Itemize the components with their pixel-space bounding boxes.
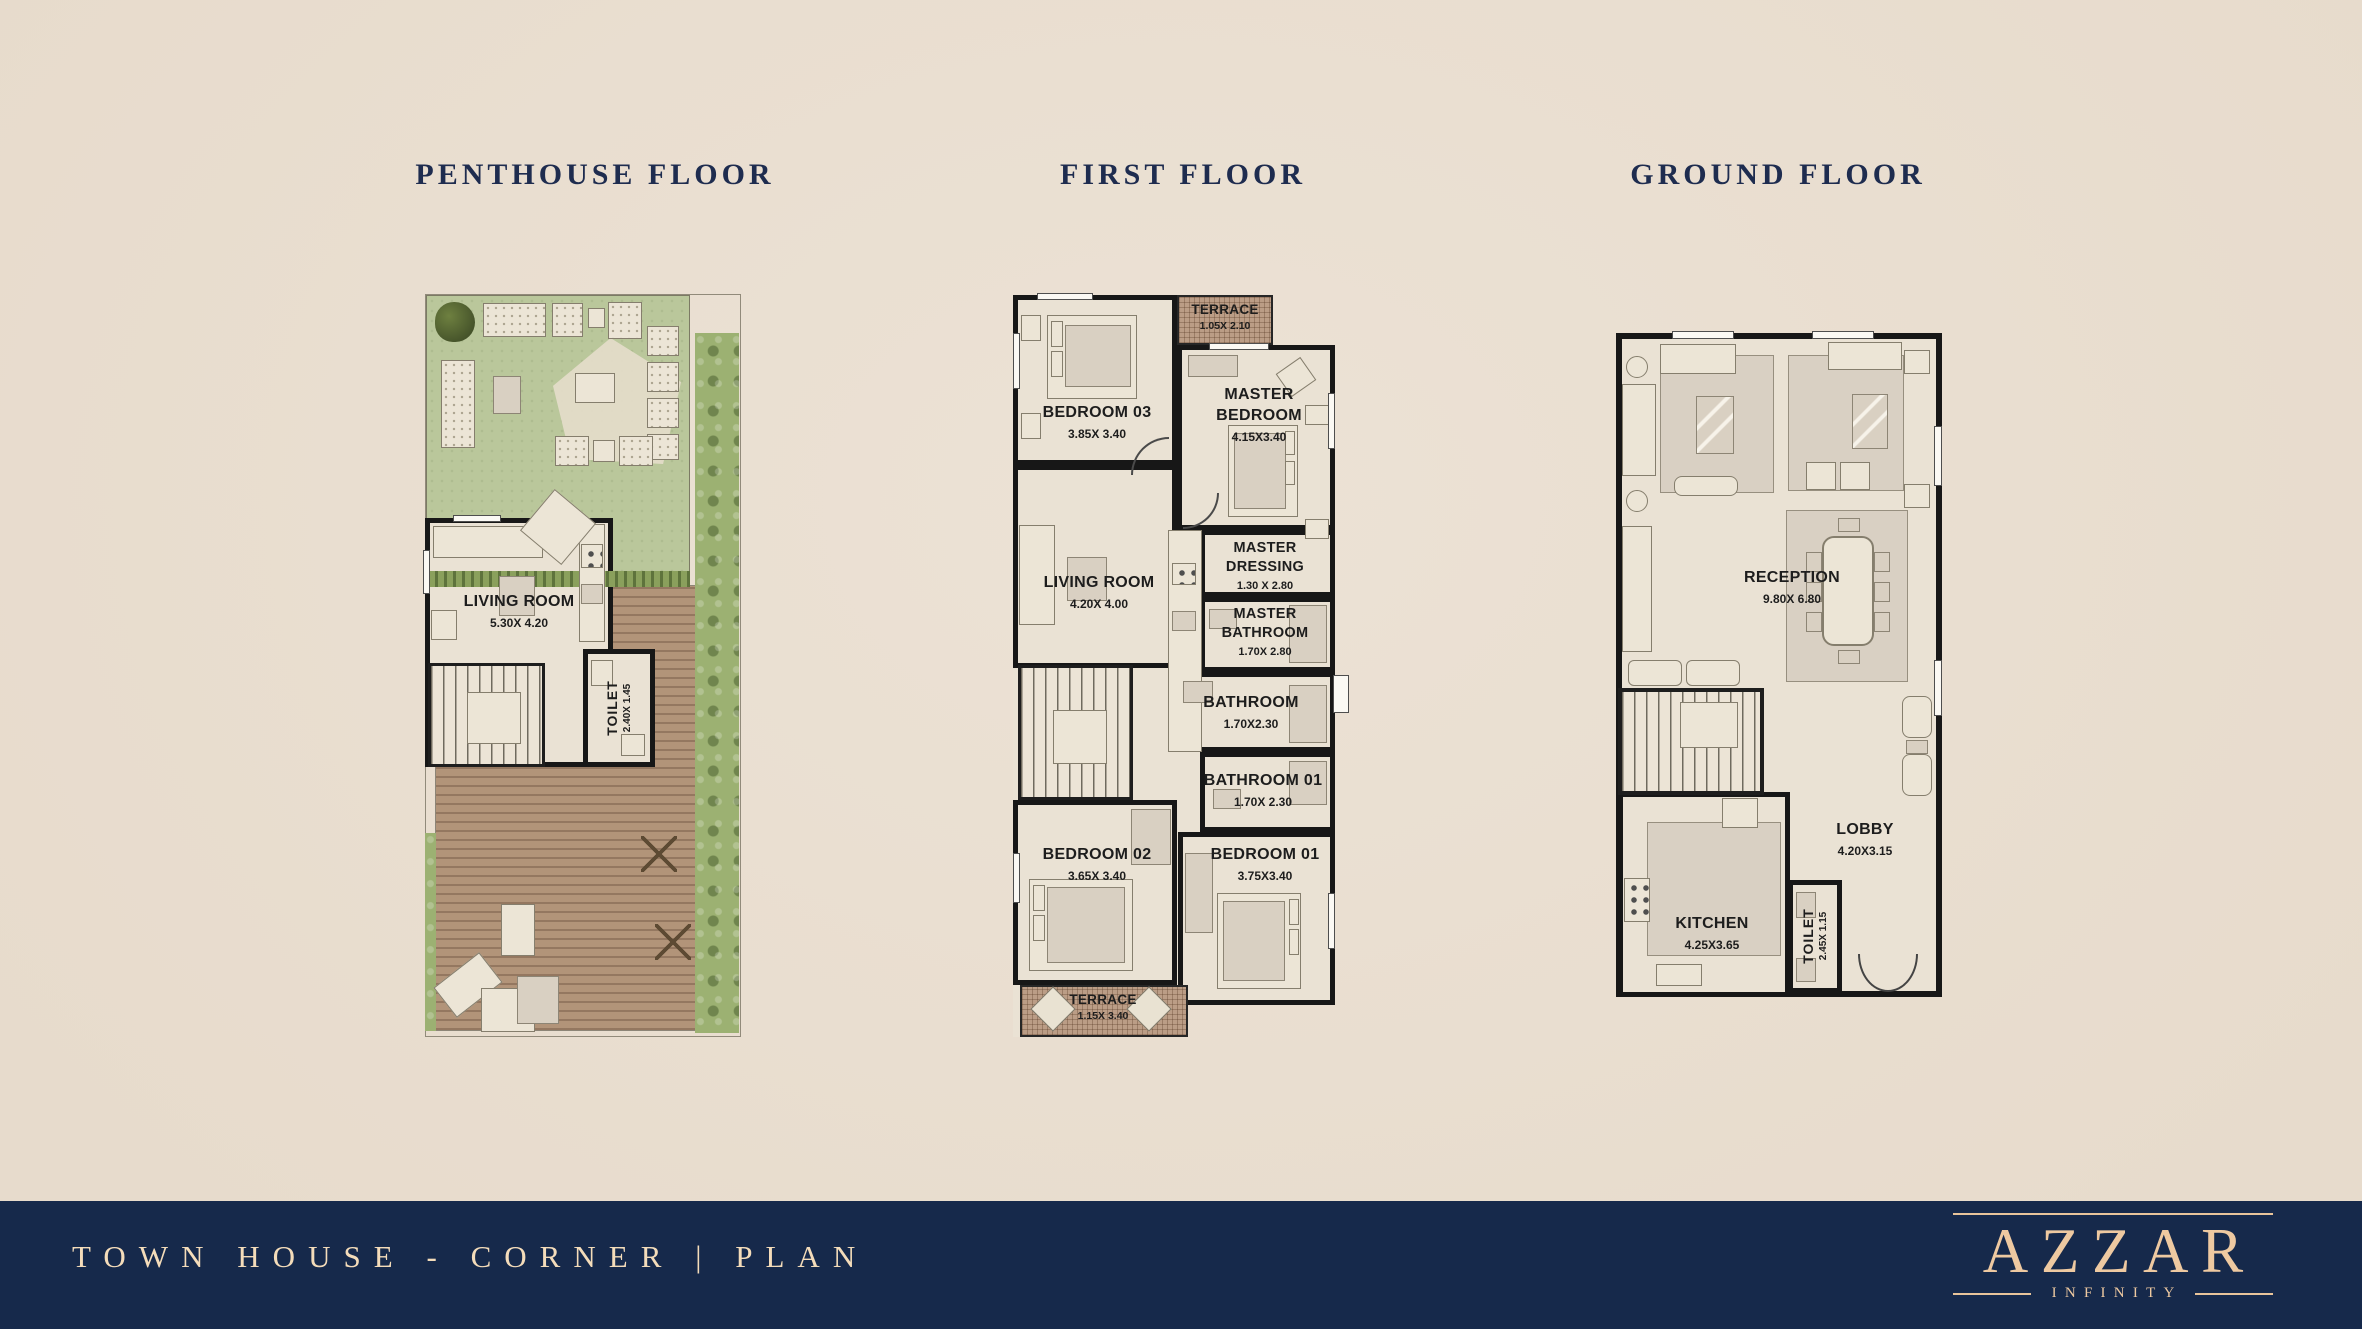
tree — [435, 302, 475, 342]
master-bedroom-label: MASTER BEDROOM 4.15X3.40 — [1216, 385, 1302, 445]
window — [423, 550, 430, 594]
living-room-label: LIVING ROOM 5.30X 4.20 — [464, 592, 575, 631]
armchair — [431, 610, 457, 640]
bedroom-03-label: BEDROOM 03 3.85X 3.40 — [1043, 403, 1152, 442]
dining-chair — [1874, 552, 1890, 572]
brand-subrow: INFINITY — [1953, 1285, 2273, 1302]
hedge-right — [695, 333, 739, 1033]
window — [1037, 293, 1093, 300]
pillow — [1051, 321, 1063, 347]
sofa — [1622, 526, 1652, 652]
penthouse-plan: LIVING ROOM 5.30X 4.20 TOILET 2.40X 1.45 — [423, 288, 753, 1040]
pillow — [1285, 461, 1295, 485]
sofa — [1622, 384, 1656, 476]
ground-floor-title: GROUND FLOOR — [1630, 158, 1926, 192]
glass-table — [1696, 396, 1734, 454]
master-dressing-label: MASTER DRESSING 1.30 X 2.80 — [1226, 539, 1304, 593]
bedroom-01-label: BEDROOM 01 3.75X3.40 — [1211, 845, 1320, 884]
lobby-table — [1906, 740, 1928, 754]
lounge-chair — [1686, 660, 1740, 686]
bedroom-02-label: BEDROOM 02 3.65X 3.40 — [1043, 845, 1152, 884]
window — [1328, 893, 1335, 949]
logo-top-rule — [1953, 1213, 2273, 1215]
garden-sofa — [483, 303, 546, 337]
window — [1672, 331, 1734, 339]
lobby-chair — [1902, 754, 1932, 796]
sink — [1172, 611, 1196, 631]
pillow — [1289, 899, 1299, 925]
living-room-ff-label: LIVING ROOM 4.20X 4.00 — [1044, 573, 1155, 612]
nightstand — [1305, 405, 1329, 425]
deck-table — [501, 904, 535, 956]
bathroom-label: BATHROOM 1.70X2.30 — [1203, 693, 1298, 732]
dining-chair — [1874, 612, 1890, 632]
nightstand — [1021, 315, 1041, 341]
window — [1328, 393, 1335, 449]
bathroom-01-label: BATHROOM 01 1.70X 2.30 — [1204, 771, 1323, 810]
nightstand — [1305, 519, 1329, 539]
stair-landing — [1053, 710, 1107, 764]
mattress — [1223, 901, 1285, 981]
toilet-gf-label: TOILET 2.45X 1.15 — [1792, 884, 1838, 988]
deck-ottoman — [517, 976, 559, 1024]
umbrella-marker — [641, 836, 677, 872]
armchair — [1806, 462, 1836, 490]
stove — [1624, 878, 1650, 922]
garden-armchair — [619, 436, 653, 466]
stair-landing — [467, 692, 521, 744]
stairs — [1618, 688, 1764, 795]
window-bay — [1333, 675, 1349, 713]
dining-chair — [1838, 650, 1860, 664]
logo-left-rule — [1953, 1293, 2031, 1295]
armchair — [1840, 462, 1870, 490]
brand-name: AZZAR — [1953, 1219, 2273, 1283]
side-table — [1904, 484, 1930, 508]
window — [453, 515, 501, 522]
garden-armchair — [555, 436, 589, 466]
stairs — [428, 663, 545, 767]
mattress — [1065, 325, 1131, 387]
floor-lamp — [1626, 356, 1648, 378]
floor-lamp — [1626, 490, 1648, 512]
stove — [1172, 563, 1196, 585]
garden-side-table — [588, 308, 605, 328]
first-floor-title: FIRST FLOOR — [1060, 158, 1306, 192]
toilet-label: TOILET 2.40X 1.45 — [586, 654, 652, 762]
lobby-chair — [1902, 696, 1932, 738]
sink — [1656, 964, 1702, 986]
brand-logo: AZZAR INFINITY — [1953, 1213, 2273, 1302]
window — [1934, 660, 1942, 716]
garden-coffee-table — [575, 373, 615, 403]
garden-long-sofa — [441, 360, 475, 448]
garden-armchair — [608, 302, 642, 339]
dining-chair — [1806, 612, 1822, 632]
sink — [581, 584, 603, 604]
stairs — [1018, 665, 1133, 800]
dining-chair — [1874, 582, 1890, 602]
footer-bar: TOWN HOUSE - CORNER | PLAN AZZAR INFINIT… — [0, 1201, 2362, 1329]
window — [1013, 333, 1020, 389]
nightstand — [1021, 413, 1041, 439]
sofa — [1660, 344, 1736, 374]
brochure-page: PENTHOUSE FLOOR FIRST FLOOR GROUND FLOOR — [0, 0, 2362, 1329]
wardrobe — [1185, 853, 1213, 933]
dresser — [1188, 355, 1238, 377]
window — [1812, 331, 1874, 339]
logo-right-rule — [2195, 1293, 2273, 1295]
pillow — [1051, 351, 1063, 377]
kitchen-label: KITCHEN 4.25X3.65 — [1675, 914, 1748, 953]
side-table — [1904, 350, 1930, 374]
reception-label: RECEPTION 9.80X 6.80 — [1744, 568, 1840, 607]
stove — [581, 544, 603, 568]
lounge-chair — [1628, 660, 1682, 686]
terrace-bottom-label: TERRACE 1.15X 3.40 — [1069, 991, 1136, 1023]
plan-title: TOWN HOUSE - CORNER | PLAN — [72, 1239, 868, 1275]
dining-chair — [1838, 518, 1860, 532]
kitchenette-counter — [579, 524, 605, 642]
fridge — [1722, 798, 1758, 828]
hedge-left — [425, 833, 436, 1031]
stair-landing — [1680, 702, 1738, 748]
garden-table — [493, 376, 521, 414]
penthouse-floor-title: PENTHOUSE FLOOR — [415, 158, 774, 192]
garden-armchair — [647, 362, 679, 392]
window — [1013, 853, 1020, 903]
shrub-row — [426, 571, 690, 587]
pillow — [1033, 915, 1045, 941]
garden-armchair — [647, 398, 679, 428]
pillow — [1289, 929, 1299, 955]
umbrella-marker — [655, 924, 691, 960]
mattress — [1047, 887, 1125, 963]
garden-side-table — [593, 440, 615, 462]
garden-armchair — [647, 326, 679, 356]
garden-armchair — [552, 303, 583, 337]
terrace-top-label: TERRACE 1.05X 2.10 — [1191, 301, 1258, 333]
ground-floor-plan: TOILET 2.45X 1.15 RECEPTION 9.80X 6.80 L… — [1616, 330, 1946, 1002]
first-floor-plan: TERRACE 1.05X 2.10 BEDROOM 03 3.85X 3.40… — [1013, 293, 1353, 1045]
master-bathroom-label: MASTER BATHROOM 1.70X 2.80 — [1222, 605, 1309, 659]
window — [1209, 343, 1269, 350]
window — [1934, 426, 1942, 486]
sofa — [1828, 342, 1902, 370]
pillow — [1033, 885, 1045, 911]
tv-console — [1674, 476, 1738, 496]
glass-table — [1852, 394, 1888, 449]
brand-subname: INFINITY — [2043, 1285, 2182, 1302]
lobby-label: LOBBY 4.20X3.15 — [1836, 820, 1894, 859]
